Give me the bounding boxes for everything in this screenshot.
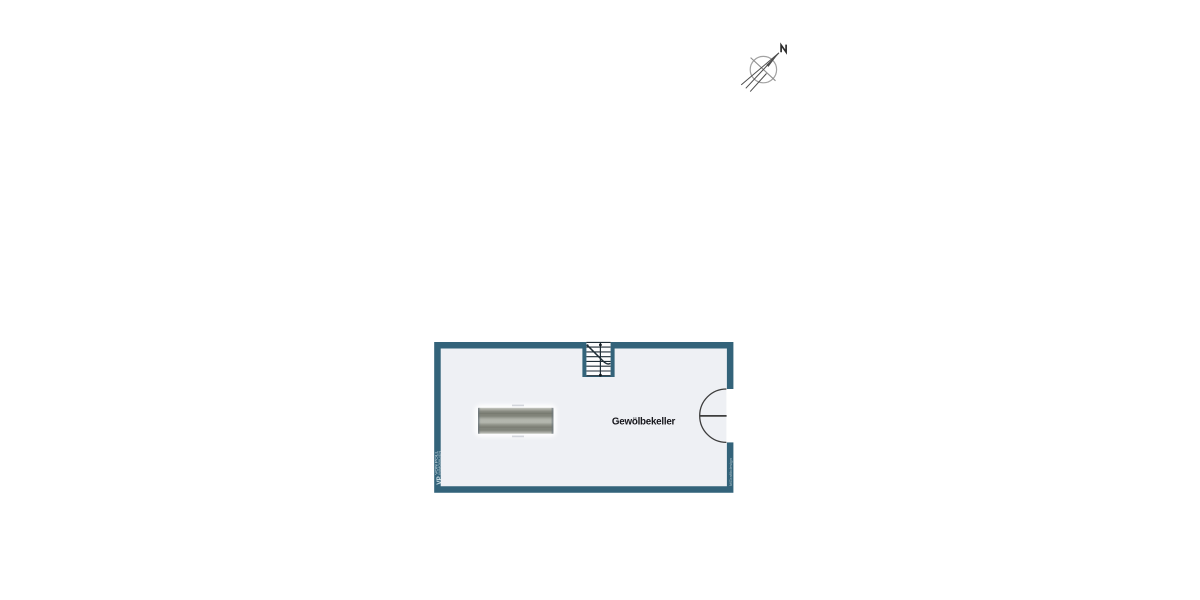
- svg-text:VP: VP: [436, 476, 443, 485]
- svg-text:Gewölbekeller: Gewölbekeller: [612, 417, 676, 428]
- svg-text:MGrafikdesign: MGrafikdesign: [729, 458, 733, 486]
- svg-text:IMMOBILIEN: IMMOBILIEN: [438, 451, 442, 475]
